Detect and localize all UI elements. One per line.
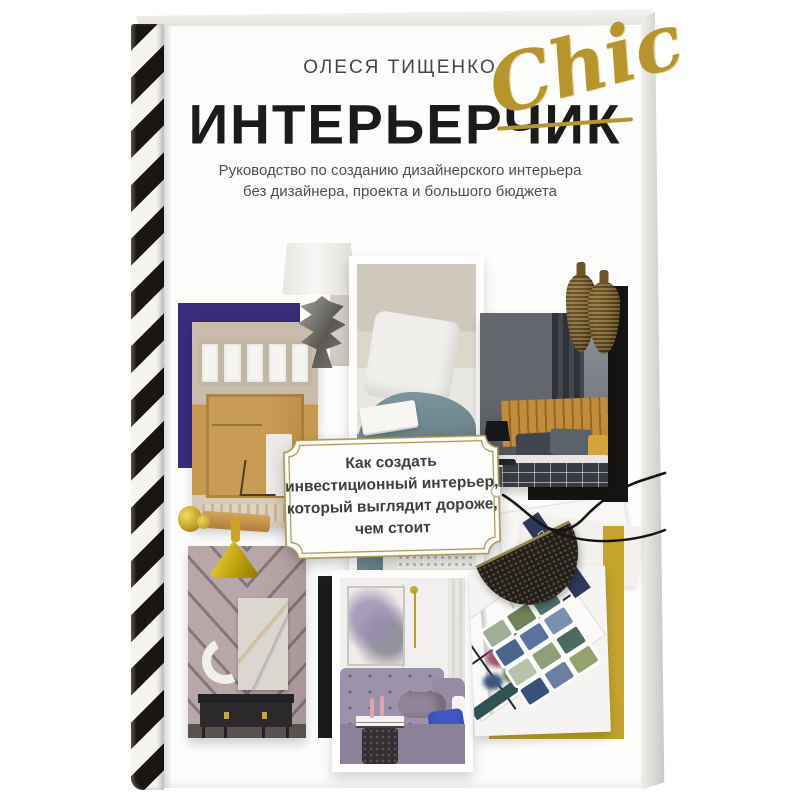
sofa-seat bbox=[340, 724, 465, 764]
marble-art-panel bbox=[238, 598, 288, 690]
console-table-body bbox=[200, 703, 292, 727]
gold-sconce-rod bbox=[414, 590, 416, 648]
pendant-stem bbox=[231, 518, 240, 542]
transom-windows bbox=[198, 340, 312, 386]
black-frame-bar bbox=[318, 576, 332, 738]
abstract-art-frame bbox=[347, 586, 405, 666]
cabinet-line bbox=[212, 424, 262, 426]
table-lamp-shade bbox=[282, 243, 356, 295]
chair-silhouette bbox=[239, 460, 280, 496]
lavender-sofa-card bbox=[332, 570, 473, 772]
paint-swatch bbox=[569, 645, 599, 673]
plaid-blanket bbox=[502, 463, 608, 487]
brass-rosette-small bbox=[197, 515, 210, 529]
paint-swatch bbox=[544, 661, 574, 689]
side-table bbox=[362, 728, 398, 764]
paint-swatch bbox=[520, 677, 550, 705]
book-stack bbox=[356, 716, 404, 728]
book-cover-product-photo: ОЛЕСЯ ТИЩЕНКО ИНТЕРЬЕРЧИК Chic Руководст… bbox=[0, 0, 800, 800]
subtitle: Руководство по созданию дизайнерского ин… bbox=[150, 160, 650, 202]
gray-pillow bbox=[550, 428, 593, 455]
console-table-top bbox=[198, 694, 294, 703]
badge-text: Как создать инвестиционный интерьер, кот… bbox=[283, 449, 501, 543]
